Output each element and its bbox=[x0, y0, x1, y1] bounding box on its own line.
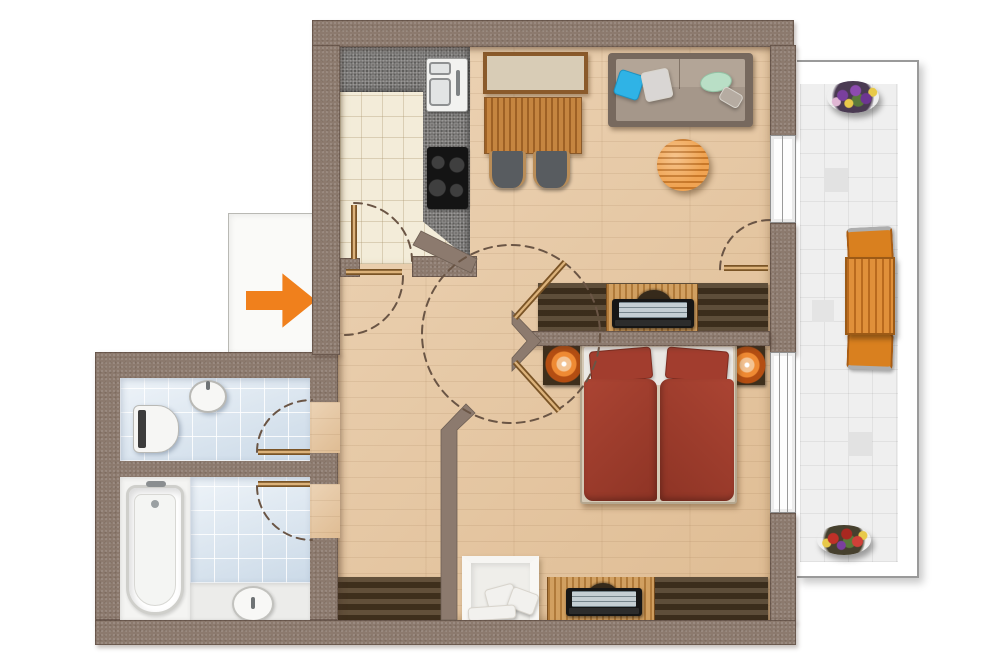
balcony-door-window-mullion bbox=[782, 136, 783, 222]
wall-bottom bbox=[95, 620, 796, 645]
wc-washbasin-faucet bbox=[206, 381, 210, 390]
bathtub-inner bbox=[134, 494, 176, 606]
bedroom-window-mullion bbox=[787, 353, 788, 512]
kitchen-faucet bbox=[456, 70, 460, 96]
kitchen-sink-bowl-large bbox=[429, 78, 451, 106]
sofa-cushion-white bbox=[640, 67, 674, 102]
wall-kitchen-stub bbox=[340, 258, 360, 277]
flower-planter-purple bbox=[827, 81, 879, 113]
cooktop bbox=[427, 147, 468, 209]
toilet-tank bbox=[138, 410, 146, 448]
wall-left bbox=[312, 45, 340, 355]
sideboard bbox=[483, 52, 588, 94]
balcony-table bbox=[845, 257, 895, 335]
laptop bbox=[566, 588, 642, 616]
wall-bedroom-divider bbox=[528, 331, 770, 346]
bed-duvet-right bbox=[660, 379, 734, 501]
sofa-seat-divider bbox=[679, 59, 680, 89]
bedroom-window-mullion bbox=[779, 353, 780, 512]
dining-chair bbox=[489, 151, 526, 188]
wall-kitchen-right bbox=[412, 256, 477, 277]
flower-planter-red bbox=[817, 525, 871, 555]
bedroom-window bbox=[770, 352, 796, 513]
balcony-door-window bbox=[770, 135, 796, 223]
wall-right-upper bbox=[770, 45, 796, 137]
bedroom-desk-dark-section bbox=[655, 577, 768, 622]
bedside-lamp-left bbox=[544, 344, 584, 384]
kitchen-sink-bowl-small bbox=[429, 62, 451, 75]
wall-top bbox=[312, 20, 794, 47]
laptop bbox=[612, 299, 694, 328]
bathroom-washbasin-faucet bbox=[251, 597, 255, 609]
laptop-keyboard bbox=[569, 608, 639, 614]
balcony-tile-accent bbox=[824, 168, 848, 192]
wall-right-middle bbox=[770, 223, 796, 354]
bathroom-floor bbox=[190, 477, 310, 583]
laptop-keyboard bbox=[615, 320, 690, 326]
round-coffee-table bbox=[657, 139, 709, 191]
laptop-screen bbox=[572, 591, 636, 606]
laptop-screen bbox=[619, 302, 688, 318]
wall-right-lower bbox=[770, 513, 796, 622]
dining-table bbox=[484, 97, 582, 154]
balcony-tile-accent bbox=[848, 432, 872, 456]
balcony-tile-accent bbox=[812, 300, 834, 322]
dining-chair bbox=[533, 151, 570, 188]
balcony-chair-bottom bbox=[846, 331, 893, 371]
bed-duvet-left bbox=[584, 379, 657, 501]
wardrobe bbox=[337, 577, 443, 622]
floor-plan bbox=[0, 0, 1000, 667]
bathtub-faucet bbox=[146, 481, 166, 487]
bathtub-drain bbox=[151, 500, 159, 508]
wc-door-opening bbox=[310, 402, 340, 453]
bathroom-door-opening bbox=[310, 484, 340, 538]
